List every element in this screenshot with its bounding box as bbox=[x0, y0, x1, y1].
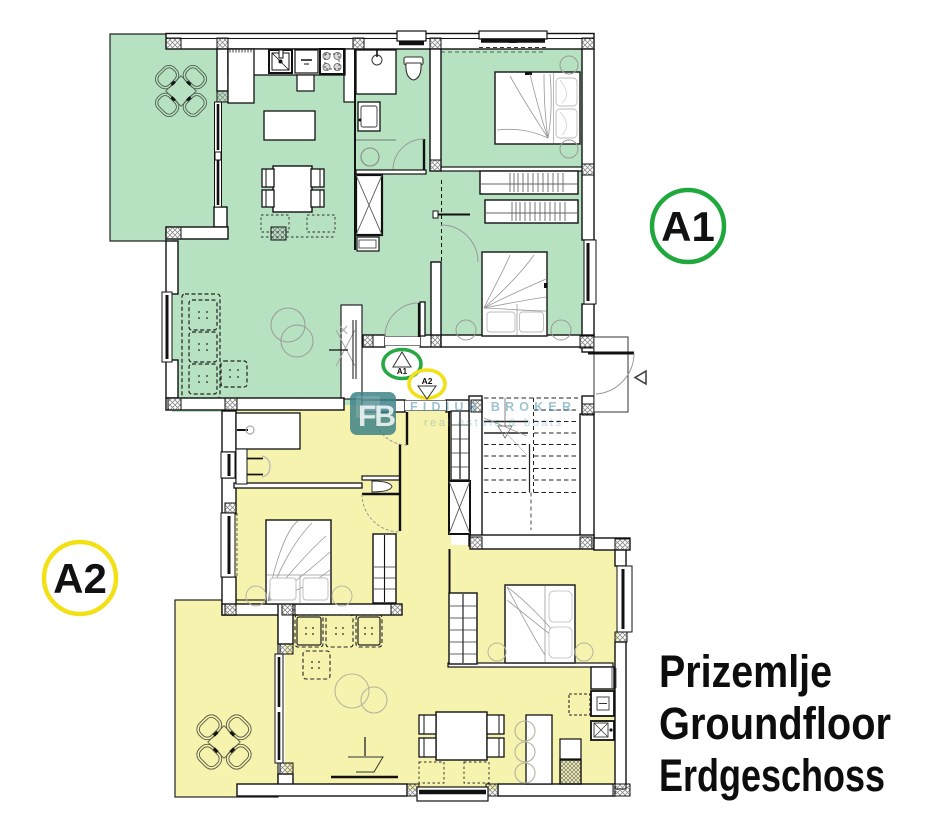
svg-text:A2: A2 bbox=[53, 555, 107, 602]
svg-text:A2: A2 bbox=[422, 376, 433, 386]
svg-text:FB: FB bbox=[358, 400, 395, 433]
svg-text:Groundfloor: Groundfloor bbox=[659, 698, 891, 749]
svg-text:A1: A1 bbox=[661, 203, 715, 250]
svg-text:Prizemlje: Prizemlje bbox=[659, 646, 832, 697]
svg-text:Erdgeschoss: Erdgeschoss bbox=[659, 750, 885, 801]
svg-text:A1: A1 bbox=[397, 367, 408, 376]
